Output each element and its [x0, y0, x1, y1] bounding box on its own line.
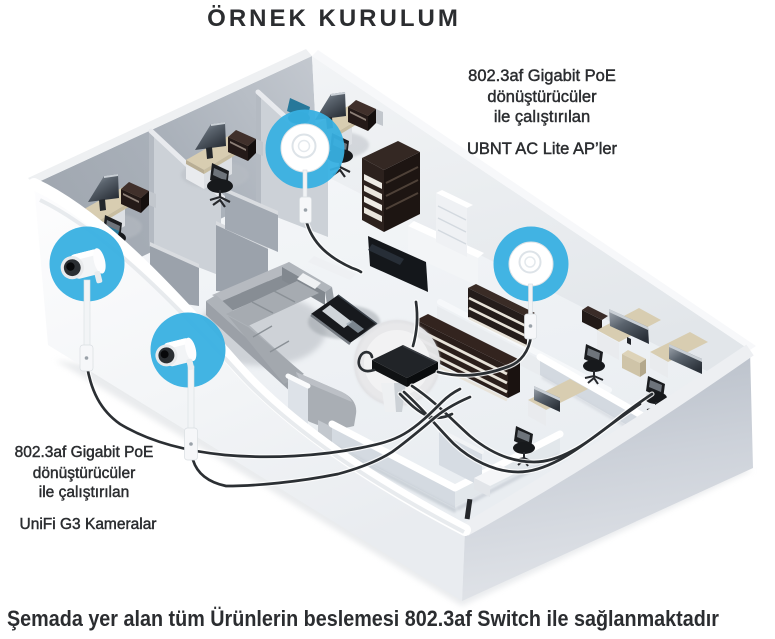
svg-text:UniFi G3 Kameralar: UniFi G3 Kameralar — [20, 516, 157, 533]
svg-text:dönüştürücüler: dönüştürücüler — [33, 465, 136, 482]
svg-text:dönüştürücüler: dönüştürücüler — [487, 88, 597, 106]
svg-text:802.3af Gigabit PoE: 802.3af Gigabit PoE — [468, 67, 616, 85]
svg-text:ÖRNEK KURULUM: ÖRNEK KURULUM — [207, 5, 461, 32]
svg-text:ile çalıştırılan: ile çalıştırılan — [494, 108, 590, 126]
svg-text:Şemada yer alan tüm Ürünlerin: Şemada yer alan tüm Ürünlerin beslemesi … — [7, 606, 719, 631]
svg-text:UBNT AC Lite AP’ler: UBNT AC Lite AP’ler — [467, 140, 618, 158]
svg-text:802.3af Gigabit PoE: 802.3af Gigabit PoE — [15, 444, 154, 461]
svg-text:ile çalıştırılan: ile çalıştırılan — [39, 484, 129, 501]
